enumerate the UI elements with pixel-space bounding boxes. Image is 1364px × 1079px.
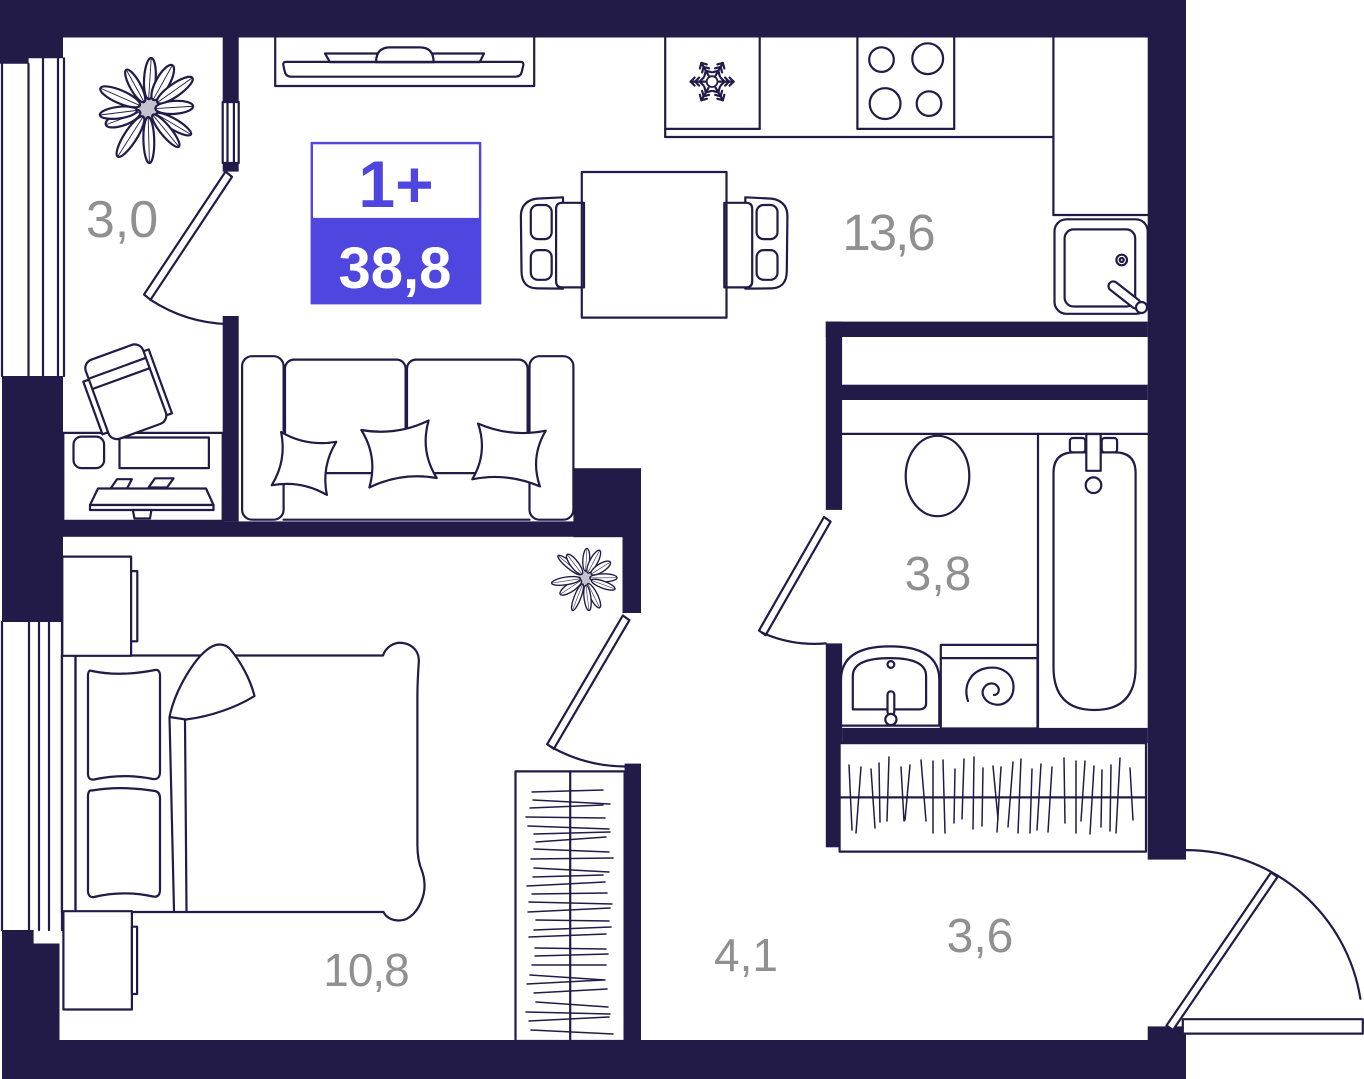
svg-text:13,6: 13,6 bbox=[842, 204, 934, 261]
svg-text:38,8: 38,8 bbox=[339, 236, 452, 301]
svg-text:3,0: 3,0 bbox=[86, 191, 158, 249]
svg-text:1+: 1+ bbox=[358, 147, 433, 221]
svg-text:3,8: 3,8 bbox=[905, 548, 972, 601]
svg-text:4,1: 4,1 bbox=[714, 929, 778, 981]
svg-text:10,8: 10,8 bbox=[323, 944, 409, 996]
svg-text:3,6: 3,6 bbox=[947, 910, 1014, 963]
